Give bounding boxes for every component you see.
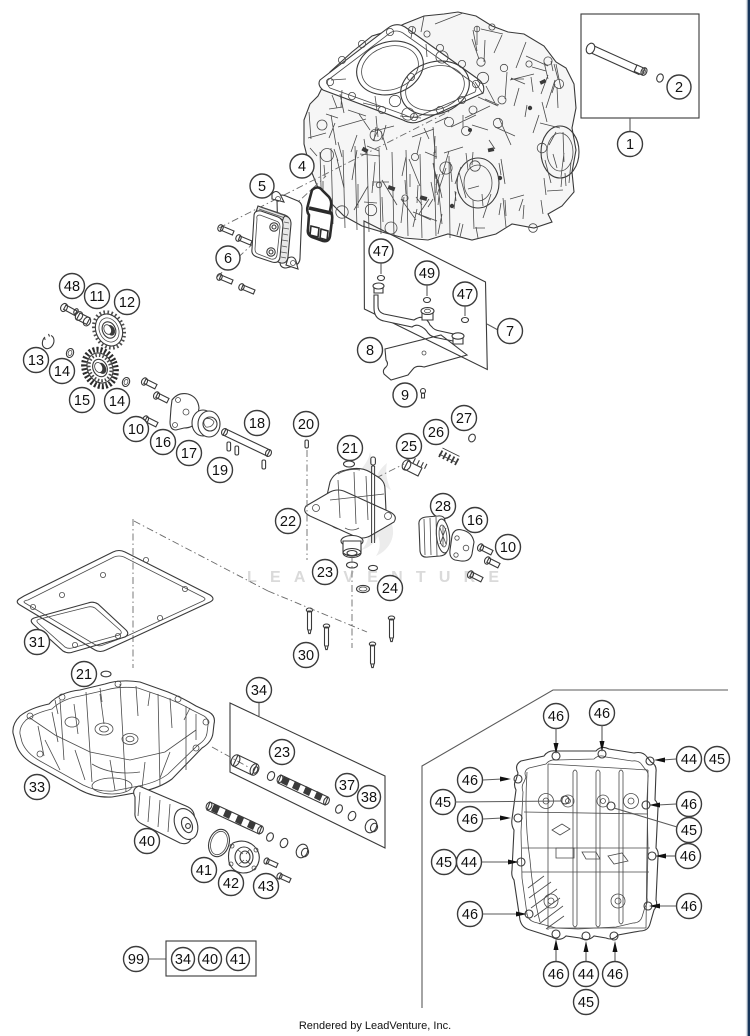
svg-text:99: 99 — [128, 952, 144, 968]
svg-text:46: 46 — [462, 907, 478, 923]
svg-text:15: 15 — [74, 393, 90, 409]
svg-text:38: 38 — [361, 790, 377, 806]
svg-text:1: 1 — [626, 137, 634, 153]
svg-text:43: 43 — [258, 879, 274, 895]
svg-text:46: 46 — [594, 706, 610, 722]
svg-text:16: 16 — [155, 435, 171, 451]
svg-text:25: 25 — [401, 439, 417, 455]
svg-text:11: 11 — [89, 289, 104, 305]
svg-text:30: 30 — [298, 648, 314, 664]
svg-text:9: 9 — [401, 388, 409, 404]
svg-text:Rendered by LeadVenture, Inc.: Rendered by LeadVenture, Inc. — [299, 1020, 451, 1032]
svg-text:46: 46 — [607, 967, 623, 983]
svg-text:2: 2 — [675, 80, 683, 96]
svg-text:47: 47 — [373, 244, 389, 260]
svg-text:12: 12 — [119, 295, 135, 311]
svg-text:10: 10 — [500, 540, 516, 556]
svg-text:24: 24 — [382, 581, 398, 597]
svg-text:46: 46 — [548, 709, 564, 725]
svg-text:45: 45 — [709, 752, 725, 768]
svg-text:33: 33 — [29, 780, 45, 796]
svg-text:44: 44 — [681, 752, 697, 768]
svg-text:6: 6 — [224, 251, 232, 267]
svg-text:22: 22 — [280, 514, 296, 530]
svg-text:31: 31 — [29, 635, 45, 651]
svg-text:10: 10 — [128, 422, 144, 438]
svg-text:23: 23 — [274, 745, 290, 761]
svg-text:47: 47 — [457, 287, 473, 303]
svg-text:21: 21 — [76, 667, 92, 683]
svg-text:46: 46 — [462, 773, 478, 789]
svg-text:28: 28 — [435, 499, 451, 515]
svg-text:7: 7 — [506, 324, 514, 340]
svg-text:40: 40 — [139, 834, 155, 850]
svg-text:26: 26 — [428, 425, 444, 441]
svg-text:45: 45 — [578, 995, 594, 1011]
svg-text:46: 46 — [680, 849, 696, 865]
svg-text:46: 46 — [681, 899, 697, 915]
svg-text:45: 45 — [435, 795, 451, 811]
svg-text:14: 14 — [109, 394, 125, 410]
svg-text:8: 8 — [366, 343, 374, 359]
svg-text:14: 14 — [54, 364, 70, 380]
svg-text:44: 44 — [461, 855, 477, 871]
svg-text:40: 40 — [202, 952, 218, 968]
svg-text:37: 37 — [339, 778, 355, 794]
svg-text:16: 16 — [467, 513, 483, 529]
svg-text:46: 46 — [462, 812, 478, 828]
svg-text:17: 17 — [181, 446, 197, 462]
svg-text:34: 34 — [175, 952, 191, 968]
svg-text:19: 19 — [212, 463, 228, 479]
svg-text:18: 18 — [249, 416, 265, 432]
svg-text:48: 48 — [64, 279, 80, 295]
svg-text:46: 46 — [681, 797, 697, 813]
svg-text:45: 45 — [681, 823, 697, 839]
svg-text:21: 21 — [342, 441, 358, 457]
svg-text:42: 42 — [223, 876, 239, 892]
svg-text:49: 49 — [419, 266, 435, 282]
svg-text:34: 34 — [251, 683, 267, 699]
svg-text:5: 5 — [258, 179, 266, 195]
svg-text:44: 44 — [578, 967, 594, 983]
svg-text:41: 41 — [196, 863, 212, 879]
svg-text:13: 13 — [28, 353, 44, 369]
svg-text:20: 20 — [298, 417, 314, 433]
svg-text:41: 41 — [230, 952, 246, 968]
svg-text:27: 27 — [456, 411, 472, 427]
svg-text:23: 23 — [317, 565, 333, 581]
svg-text:46: 46 — [548, 967, 564, 983]
svg-text:45: 45 — [436, 855, 452, 871]
svg-text:4: 4 — [298, 159, 306, 175]
